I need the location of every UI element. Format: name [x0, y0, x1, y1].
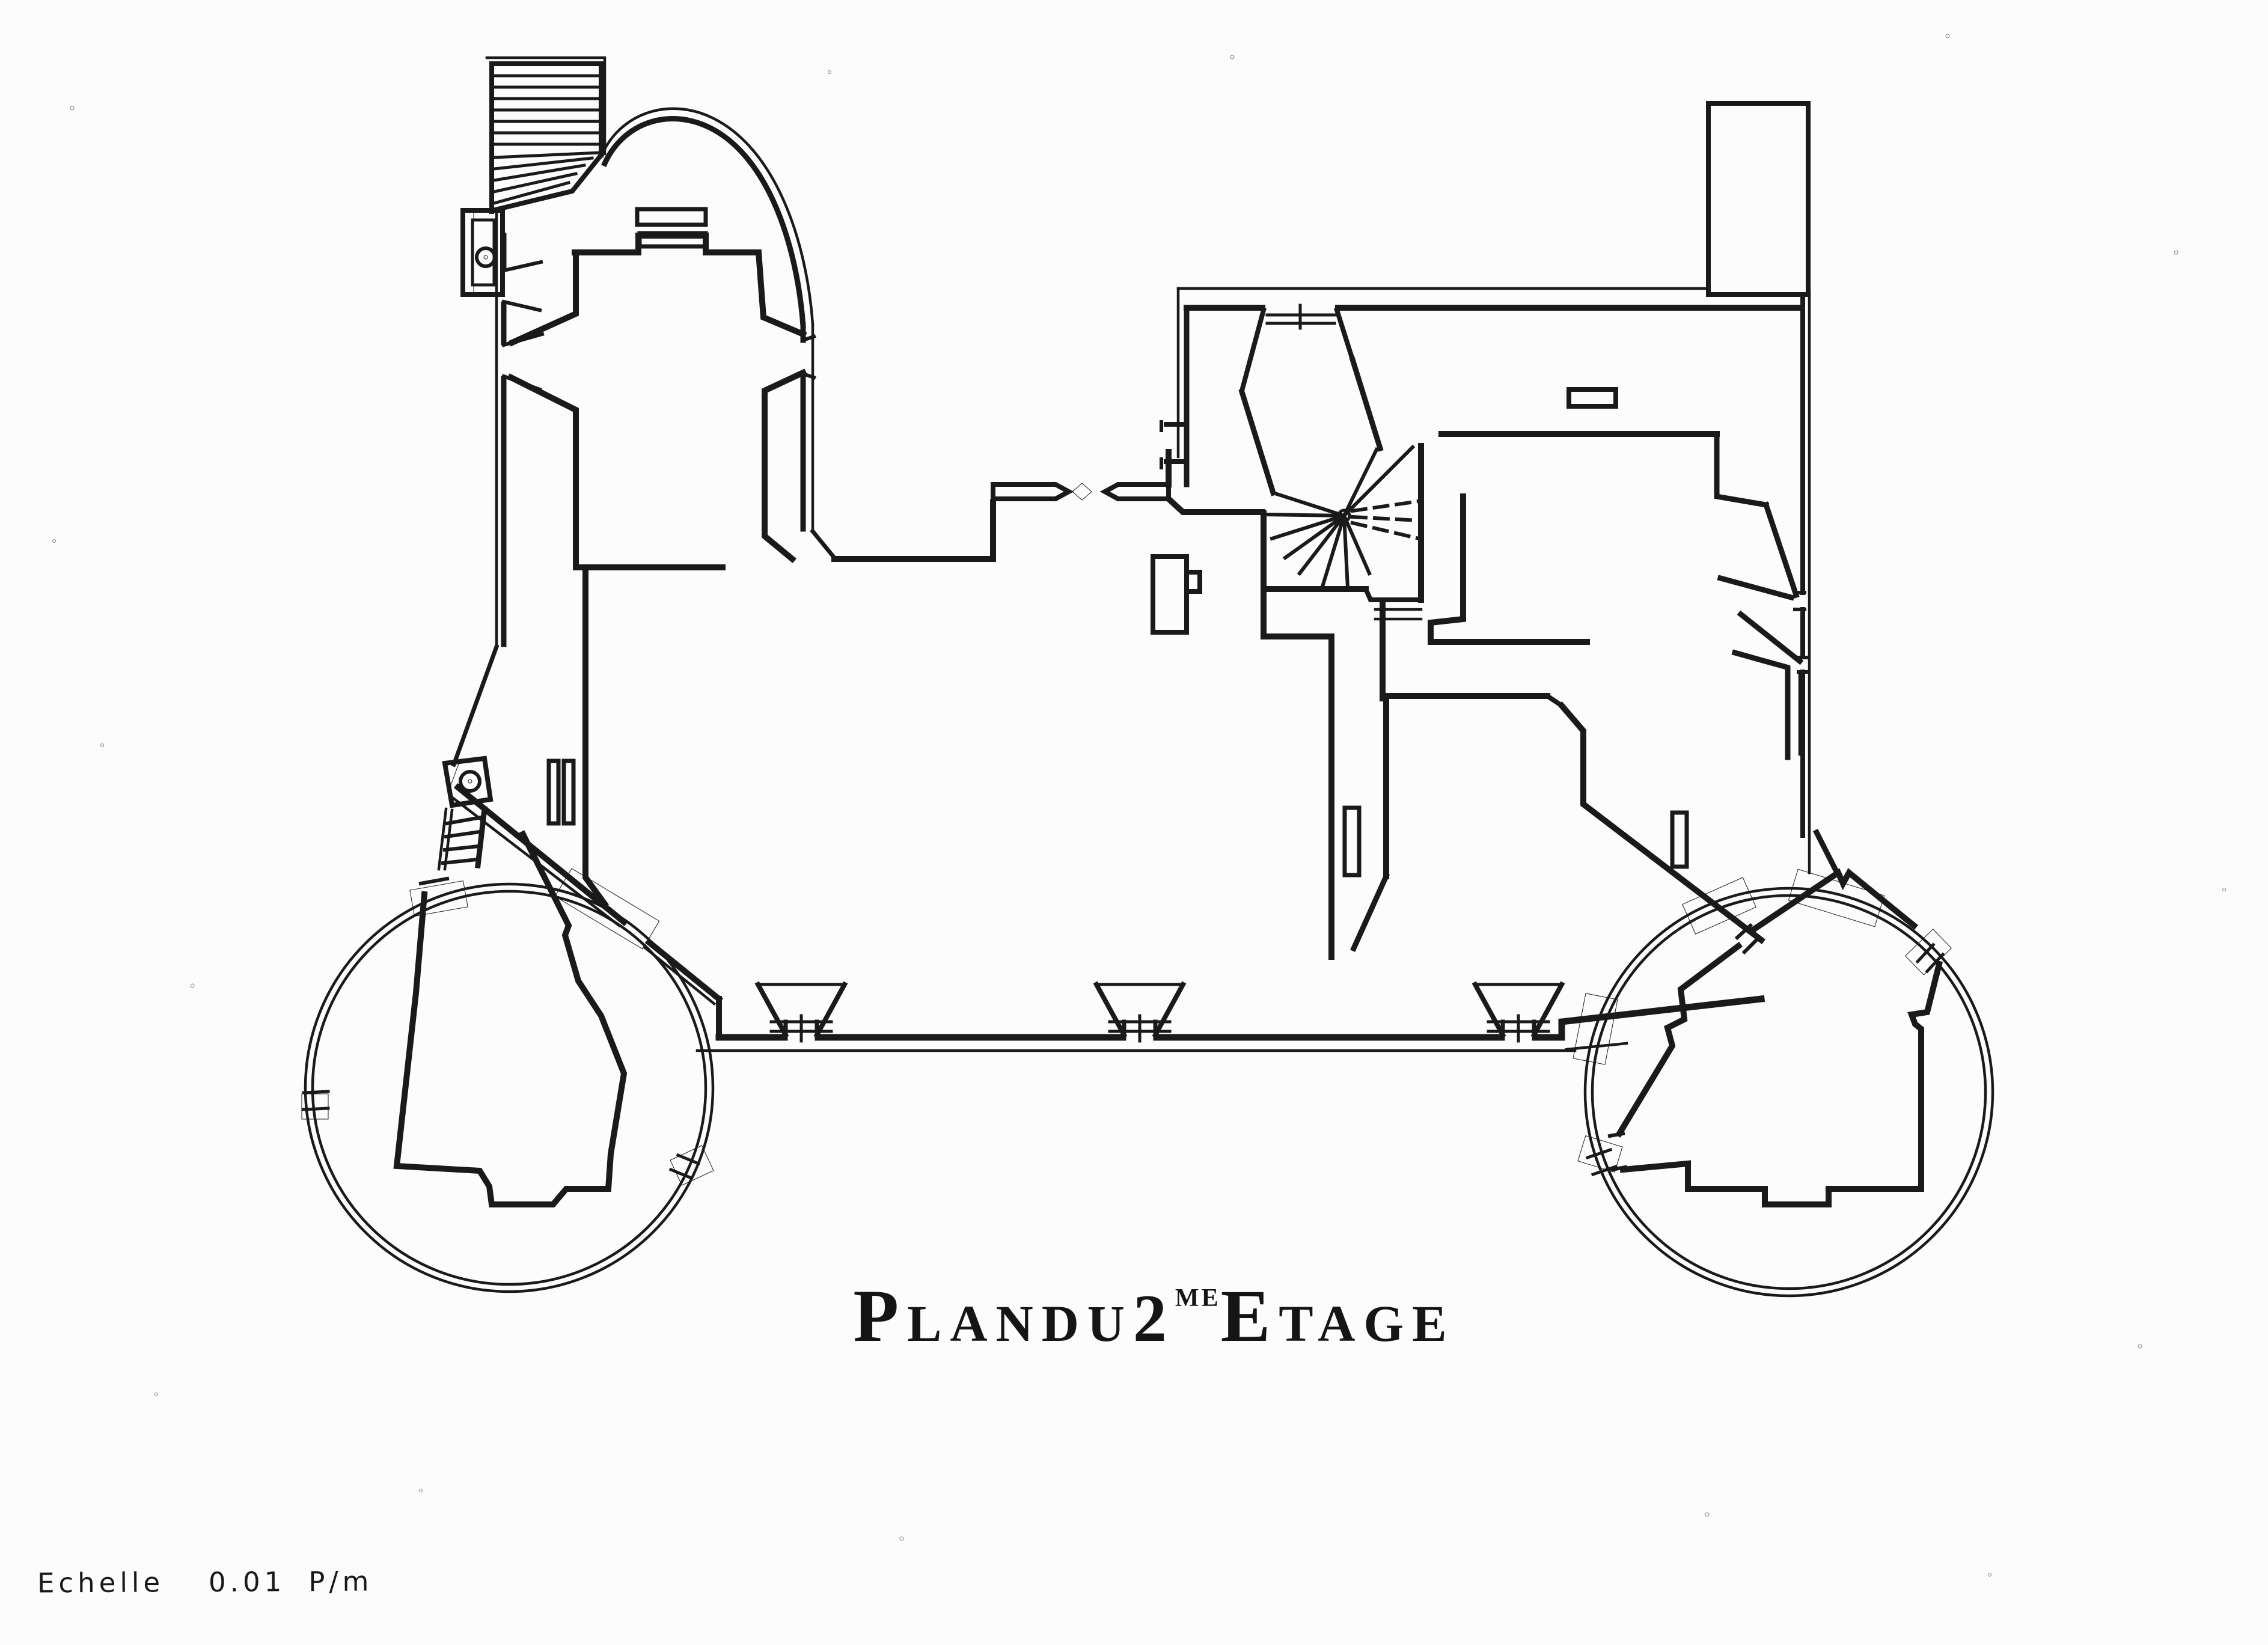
- tower-room: [397, 834, 624, 1204]
- door-jamb-east: [1105, 484, 1169, 499]
- plan-title: Plan du 2me Etage: [860, 1279, 1449, 1354]
- southeast-tower: [1573, 832, 1993, 1296]
- title-word: lan: [907, 1298, 1042, 1349]
- flue-slot: [1345, 808, 1359, 875]
- scale-value: 0.01: [209, 1566, 286, 1598]
- hall-pillar: [1153, 557, 1187, 632]
- stair-treads-hidden: [1353, 501, 1419, 539]
- flue-slot: [549, 761, 558, 823]
- fireplace-bar: [637, 209, 706, 225]
- title-word: tage: [1279, 1298, 1455, 1349]
- flue-slot: [564, 761, 573, 823]
- spiral-staircase: [1242, 359, 1421, 957]
- floor-plan-drawing: [0, 0, 2268, 1645]
- title-ordinal: me: [1175, 1286, 1221, 1311]
- northeast-wing: [1178, 288, 1809, 873]
- south-windows: [758, 984, 1562, 1041]
- tower-room: [1623, 964, 1939, 1204]
- title-word: du: [1042, 1298, 1133, 1349]
- tower-room: [1619, 946, 1738, 1134]
- central-hall: [453, 422, 1575, 1051]
- title-initial: P: [853, 1279, 907, 1354]
- east-window-splay-2: [1735, 614, 1800, 667]
- hearth-mark: [1569, 389, 1616, 406]
- title-floor-number: 2: [1133, 1285, 1175, 1352]
- east-window-splay-1: [1720, 505, 1796, 597]
- flue-slot: [1672, 813, 1687, 867]
- chimney: [1708, 103, 1808, 295]
- title-initial: E: [1221, 1279, 1279, 1354]
- scanned-drawing-sheet: Plan du 2me Etage Echelle0.01P/m: [0, 0, 2268, 1645]
- chimney-outline: [1708, 103, 1808, 295]
- fireplace-bar: [640, 233, 706, 246]
- southwest-tower: [302, 834, 714, 1292]
- door-pivot-diamond: [1072, 483, 1092, 500]
- scale-label: Echelle: [37, 1566, 164, 1599]
- door-jamb-west: [993, 484, 1069, 499]
- column-icon: [477, 248, 495, 266]
- scale-unit: P/m: [308, 1566, 373, 1598]
- column-icon: [460, 772, 480, 791]
- scale-note: Echelle0.01P/m: [37, 1566, 373, 1599]
- west-window-splay-1: [504, 262, 541, 310]
- northwest-staircase: [487, 58, 605, 212]
- gallery: [439, 647, 497, 869]
